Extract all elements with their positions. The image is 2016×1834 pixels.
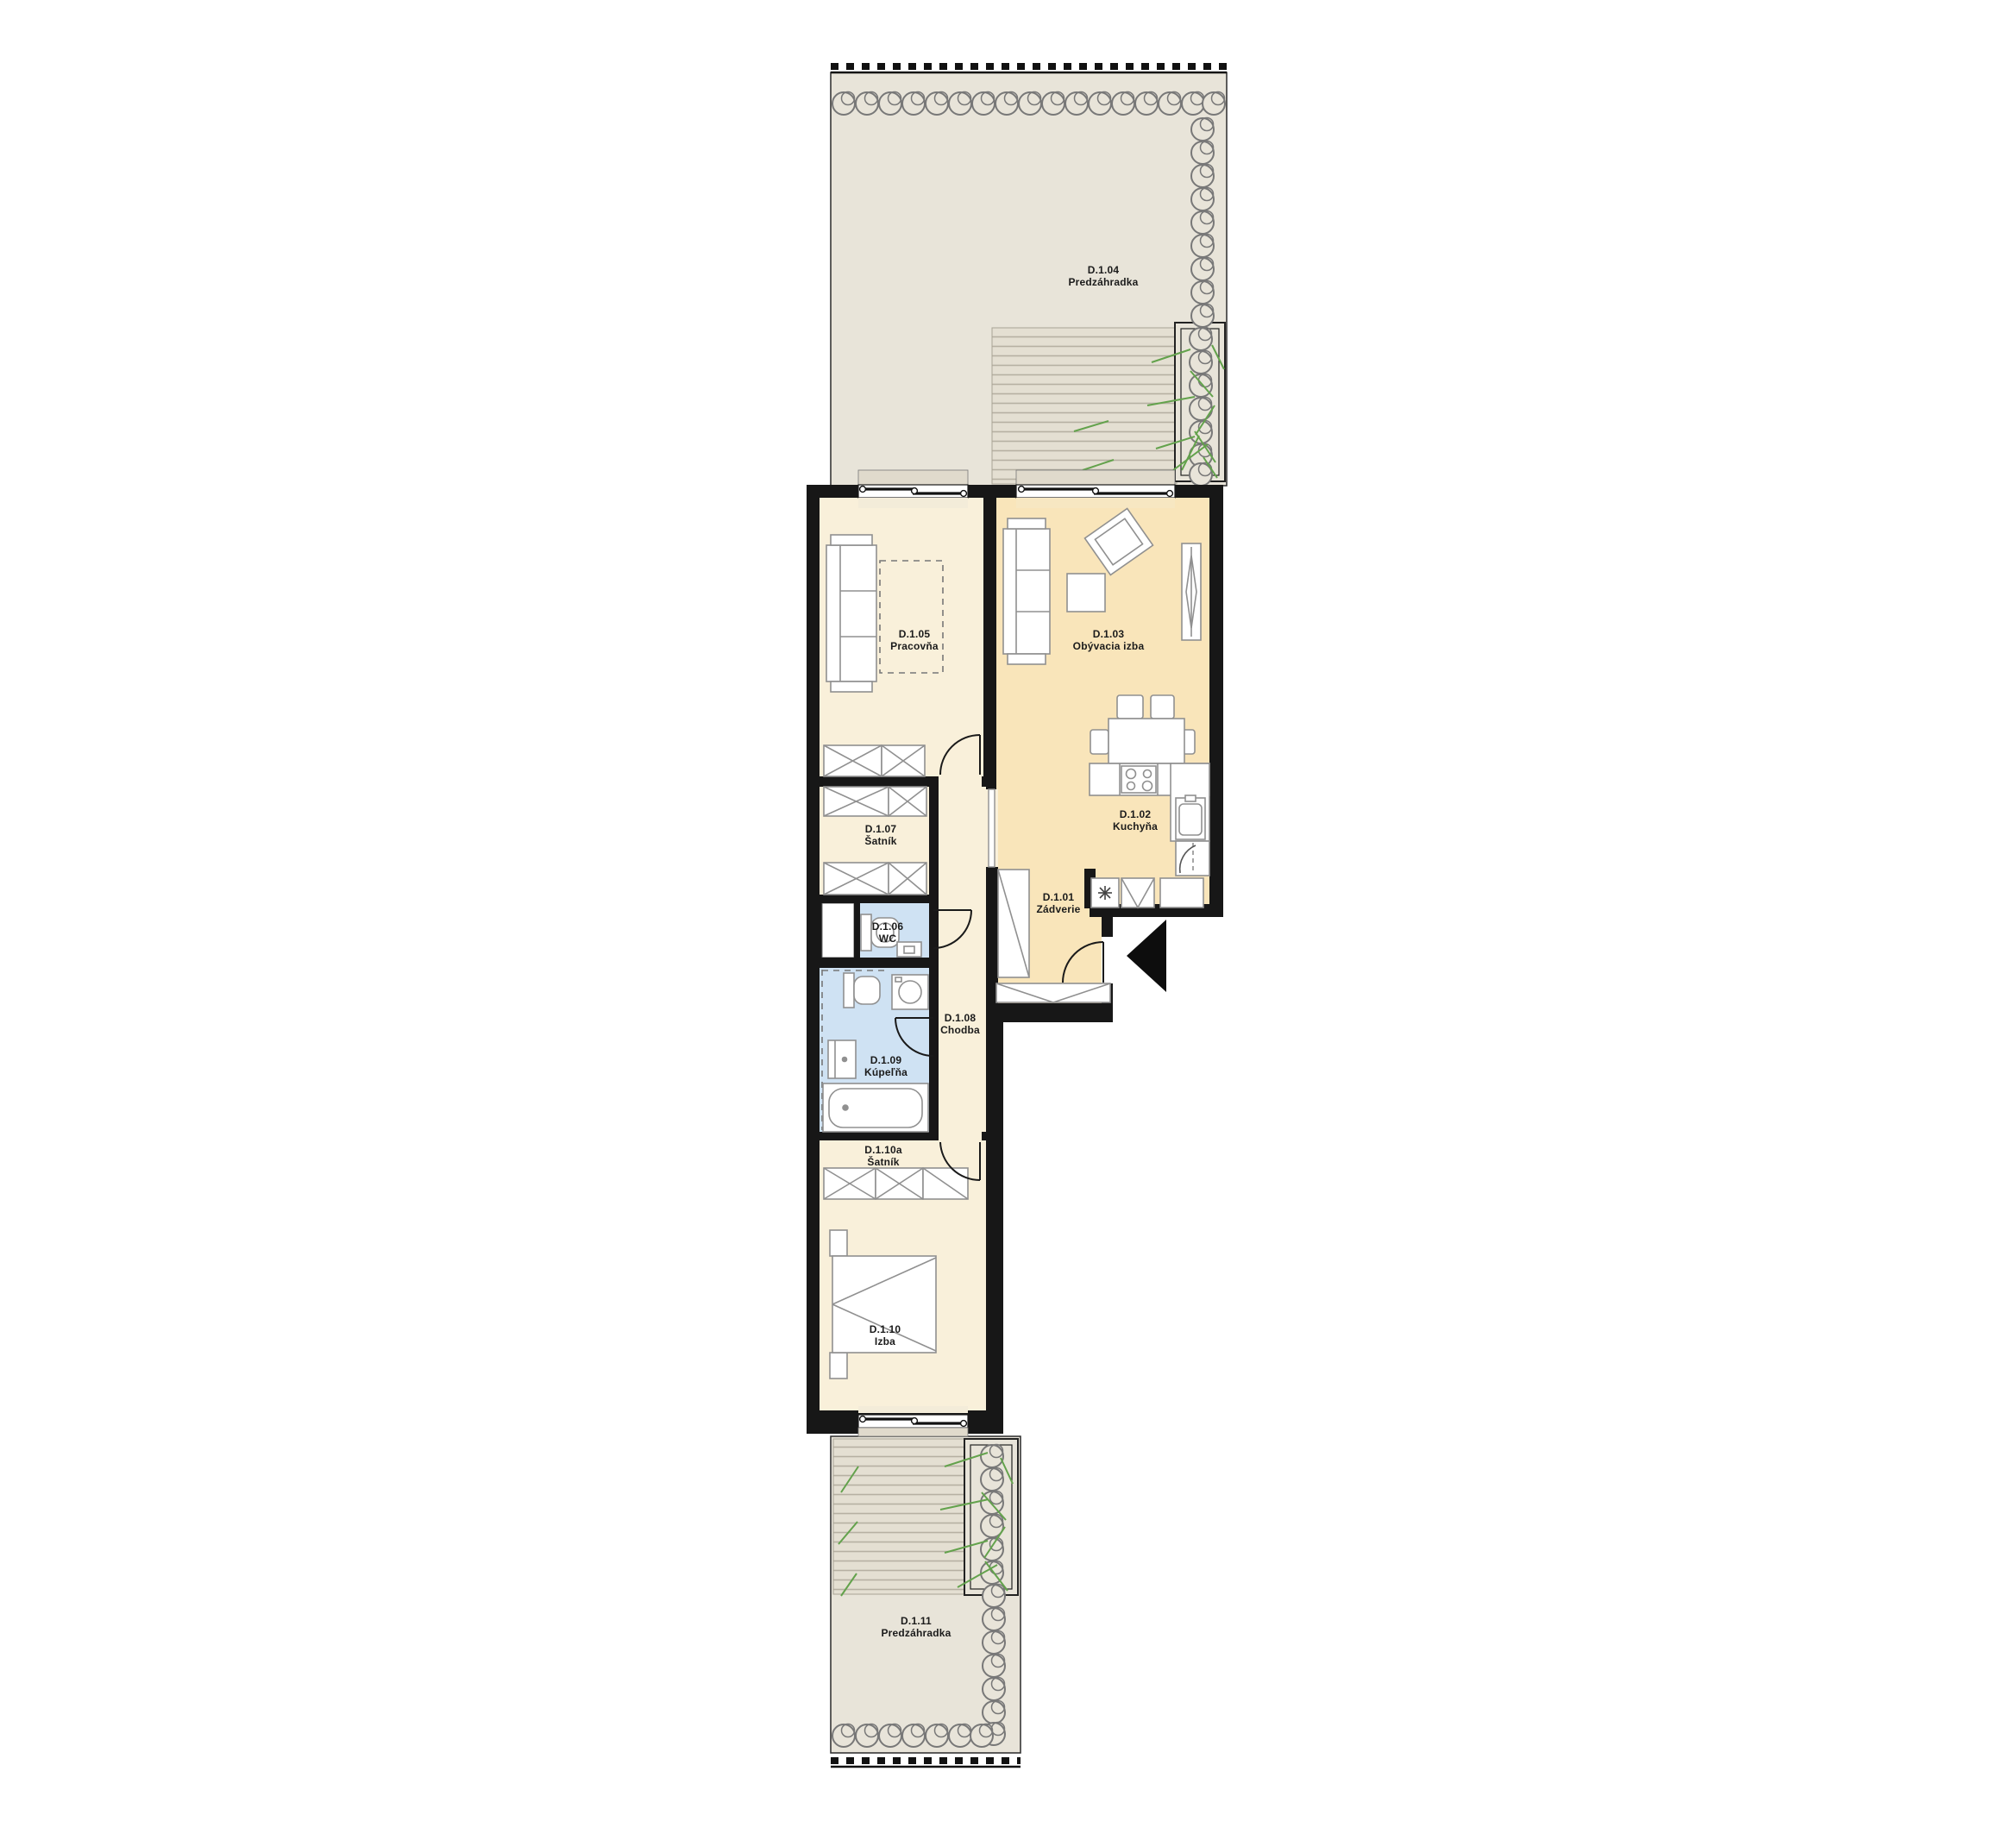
window-living-top (1016, 470, 1175, 508)
sofa-living (1003, 518, 1050, 664)
shoe-cabinet (996, 983, 1110, 1002)
window-pracovna-top (858, 470, 968, 508)
opening-satnik10a-door (939, 1132, 982, 1140)
shaft-niche (822, 903, 854, 958)
nightstand-bottom (830, 1353, 847, 1379)
tall-wardrobe (998, 870, 1029, 977)
bathtub (823, 1083, 928, 1132)
opening-pracovna-door (939, 776, 982, 787)
entrance-arrow-icon (1127, 920, 1166, 992)
shrub-row-top (832, 92, 1225, 116)
sofa-pracovna (826, 535, 876, 692)
utility-units (1091, 878, 1203, 908)
floorplan-drawing (0, 0, 2016, 1834)
bed (832, 1256, 936, 1353)
bottom-garden-area (831, 1436, 1021, 1767)
wc-toilet-tank (861, 914, 871, 951)
door-leaf-chodba-zadverie (989, 789, 995, 867)
fence-top (831, 66, 1227, 72)
radiator (1182, 543, 1201, 640)
bottom-terrace-deck (833, 1439, 964, 1594)
bath-toilet-bowl (854, 977, 880, 1004)
floorplan-canvas: D.1.04Predzáhradka D.1.05Pracovňa D.1.03… (0, 0, 2016, 1834)
wc-sink (897, 942, 921, 957)
wardrobe-pracovna (824, 745, 925, 776)
nightstand-top (830, 1230, 847, 1256)
bath-toilet-tank (844, 973, 854, 1008)
washer-unit (1121, 878, 1154, 908)
window-izba-bottom (858, 1406, 968, 1436)
fence-bottom (831, 1761, 1021, 1767)
satnik10a-wardrobes (824, 1168, 968, 1199)
kitchen-niche (1176, 841, 1209, 876)
top-garden-area (831, 66, 1227, 486)
room-chodba-floor (939, 787, 986, 1132)
coffee-table (1067, 574, 1105, 612)
bath-sink (828, 1040, 856, 1078)
kitchen-sink (1176, 795, 1205, 839)
washing-machine (892, 975, 928, 1009)
cabinet-unit (1160, 878, 1203, 908)
wc-toilet-bowl (871, 918, 899, 947)
